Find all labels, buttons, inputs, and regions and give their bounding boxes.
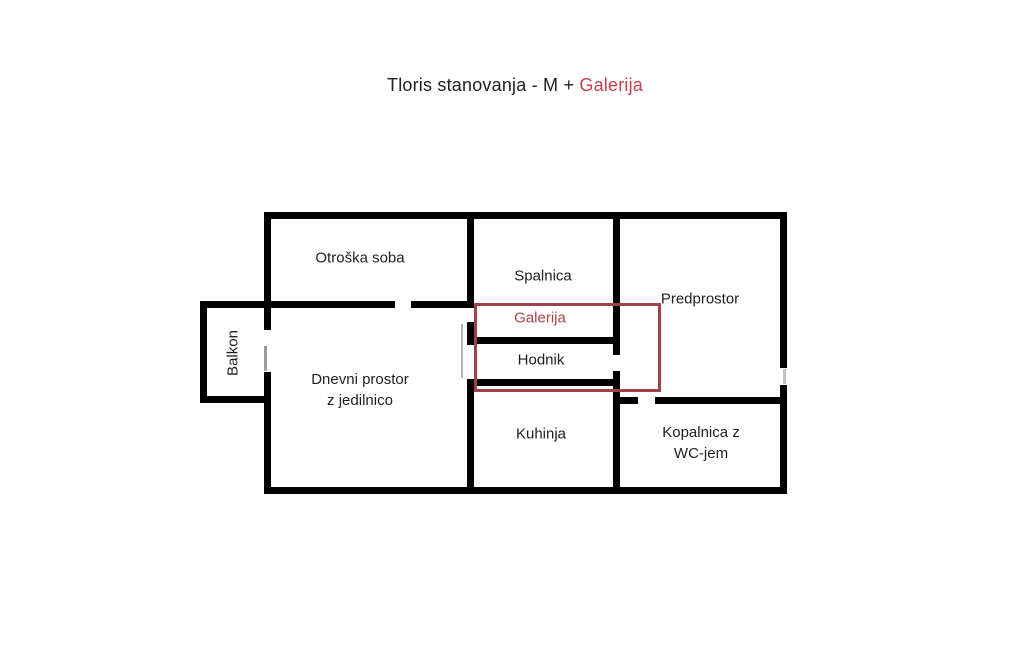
room-label-dnevni-prostor-line1: Dnevni prostor	[311, 369, 409, 390]
wall-balkon-bottom	[200, 396, 271, 403]
wall-below-otroska-right	[411, 301, 474, 308]
galerija-outline	[474, 303, 661, 392]
room-label-hodnik: Hodnik	[518, 350, 565, 371]
wall-outer-right-upper	[780, 212, 787, 368]
wall-kopalnica-top-right	[655, 397, 787, 404]
wall-outer-left-lower	[264, 372, 271, 494]
entrance-door-leaf	[783, 369, 786, 384]
page-title-main: Tloris stanovanja - M +	[387, 75, 579, 95]
wall-outer-left-upper	[264, 212, 271, 330]
wall-inner-v1-bottom	[467, 380, 474, 494]
wall-outer-bottom	[264, 487, 787, 494]
room-label-kopalnica: Kopalnica z WC-jem	[662, 422, 740, 464]
page-title: Tloris stanovanja - M + Galerija	[0, 74, 1030, 96]
room-label-predprostor: Predprostor	[661, 289, 739, 310]
wall-inner-v1-top	[467, 212, 474, 307]
room-label-galerija: Galerija	[514, 308, 566, 329]
wall-below-otroska-left	[200, 301, 395, 308]
room-label-kopalnica-line2: WC-jem	[662, 443, 740, 464]
room-label-kuhinja: Kuhinja	[516, 424, 566, 445]
wall-outer-top	[264, 212, 787, 219]
room-label-dnevni-prostor-line2: z jedilnico	[311, 390, 409, 411]
room-label-kopalnica-line1: Kopalnica z	[662, 422, 740, 443]
room-label-spalnica: Spalnica	[514, 266, 572, 287]
room-label-otroska-soba: Otroška soba	[315, 248, 404, 269]
hodnik-door-leaf	[461, 324, 463, 378]
room-label-balkon: Balkon	[223, 330, 244, 376]
page-title-accent: Galerija	[579, 75, 643, 95]
room-label-dnevni-prostor: Dnevni prostor z jedilnico	[311, 369, 409, 411]
balcony-door-leaf	[264, 346, 267, 371]
wall-balkon-left	[200, 301, 207, 403]
floor-plan: Tloris stanovanja - M + Galerija Otroška…	[0, 0, 1030, 646]
wall-kopalnica-top-left	[613, 397, 638, 404]
